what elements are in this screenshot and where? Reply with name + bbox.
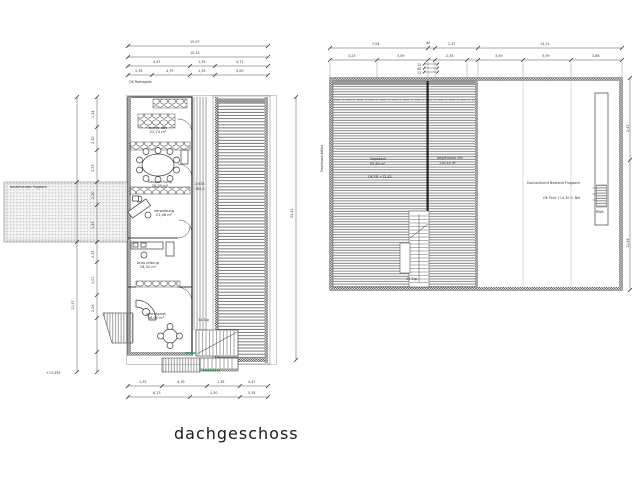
room-label-sekretariat: sekretariat 26,01 m² (138, 312, 174, 320)
dim-label: 15,97 (190, 40, 200, 44)
room-label-archiv: archiv edv 22,74 m² (140, 126, 176, 134)
room-area: 21,46 m² (146, 213, 182, 217)
dim-label: 3,59 (397, 54, 404, 58)
zone-mid-area: 110,45 m² (439, 161, 456, 165)
dim-label: 11,57 (71, 300, 75, 310)
roof-divider-hatch (475, 81, 478, 287)
glass-roof-strip (213, 96, 270, 364)
terrace-label: bestehendes flugdach (10, 185, 47, 189)
floor-plan-linework (0, 0, 640, 480)
dim-label: 14,11 (540, 42, 550, 46)
skylight-label: RWA (596, 210, 604, 214)
dim-label: 1,35 (135, 69, 142, 73)
dim-label: 5,00 (236, 69, 243, 73)
roof-mid-wall (427, 81, 429, 211)
dim-label: 6,13 (153, 391, 160, 395)
corridor-lines (194, 97, 206, 330)
dim-label: 3,59 (495, 54, 502, 58)
dim-label: 4,77 (236, 60, 243, 64)
stair-label-left: 14 Stg (198, 318, 209, 322)
corridor-dim-a: 2,635 (195, 182, 205, 186)
dim-label: 4,79 (166, 69, 173, 73)
right-plan (328, 46, 632, 292)
room-area: 18,32 m² (130, 265, 166, 269)
dim-label: 1,35 (139, 380, 146, 384)
dim-label: 3,23 (348, 54, 355, 58)
dim-label: 1,34 (91, 111, 95, 118)
page-title: dachgeschoss (174, 424, 299, 443)
room-label-buero: büro leitung 18,32 m² (130, 261, 166, 269)
dim-label: 11,64 (626, 238, 630, 248)
dim-label: 2,30 (91, 192, 95, 199)
dim-label: 2,35 (446, 54, 453, 58)
dim-label: 2,47 (448, 42, 455, 46)
room-area: 22,74 m² (140, 130, 176, 134)
wall-bottom-hatch (128, 352, 192, 356)
room-label-verwaltung: verwaltung 21,46 m² (146, 209, 182, 217)
elevation-note: +13,455 (46, 371, 61, 375)
room-area: 26,01 m² (138, 316, 174, 320)
dim-label: 12 (417, 63, 421, 67)
dim-label: 5,35 (248, 391, 255, 395)
left-bay (103, 313, 133, 343)
dim-label: 2,26 (91, 305, 95, 312)
dim-label: 3,86 (592, 54, 599, 58)
room-label-besprechung: besprechung 28,05 m² (142, 180, 178, 188)
roof-ridge-band (333, 81, 477, 85)
dim-label: 1,35 (217, 380, 224, 384)
note-rollregal: OK Rollregale (129, 80, 152, 84)
zone-left-area: 95,60 m² (370, 162, 385, 166)
roof-note-1: Dachaufsicht Bestand Flugdach (527, 181, 580, 185)
roof-edge-label: Dachrand Attika (320, 145, 324, 172)
skylight (593, 93, 609, 225)
dim-label: 4,47 (153, 60, 160, 64)
dim-label: 1,01 (91, 277, 95, 284)
dim-label: 23,41 (290, 208, 294, 218)
room-area: 28,05 m² (142, 184, 178, 188)
dim-label: 4,79 (177, 380, 184, 384)
left-plan (4, 44, 298, 399)
dim-label: 3,23 (91, 165, 95, 172)
drawing-canvas: dachgeschoss archiv edv 22,74 m² besprec… (0, 0, 640, 480)
zone-left-note: OK FB +13,45 (368, 175, 392, 179)
dim-label: 1,35 (198, 69, 205, 73)
roof-ref-lines (330, 62, 622, 78)
dim-label: 15,14 (190, 51, 200, 55)
corridor-dim-b: 100,5 (195, 187, 205, 191)
roof-note-2: OK First +14,30 ü. NN (543, 196, 580, 200)
dim-label: 40 (426, 41, 430, 45)
dim-label: 1,50 (210, 391, 217, 395)
dim-label: 7,04 (372, 42, 379, 46)
stair-label-right: 14 Stg (406, 277, 417, 281)
dim-label: 2,25 (91, 251, 95, 258)
terrace-area (4, 182, 128, 242)
dim-label: 4,47 (248, 380, 255, 384)
zone-mid-label: begehbarer teil (437, 156, 463, 160)
dim-label: 40 (417, 67, 421, 71)
dim-label: 1,35 (198, 60, 205, 64)
dim-label: 2,30 (91, 137, 95, 144)
dim-label: 3,59 (542, 54, 549, 58)
dim-label: 2,47 (626, 125, 630, 132)
dim-label: 12 (417, 71, 421, 75)
zone-left-label: liegedach (370, 157, 386, 161)
dim-label: 1,35 (91, 222, 95, 229)
